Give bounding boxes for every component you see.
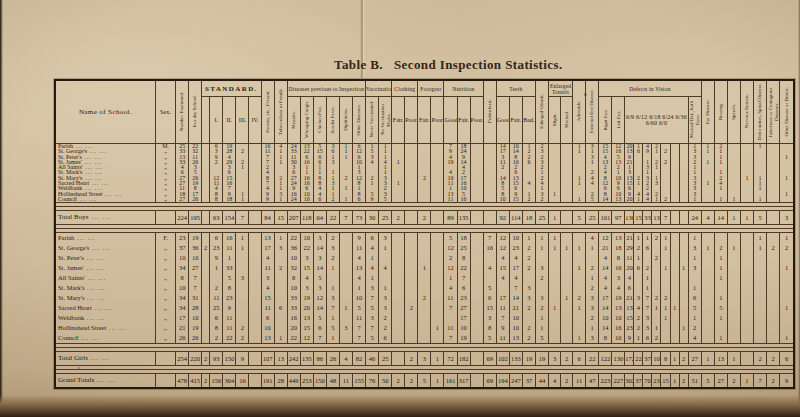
data-cell: [326, 273, 339, 283]
data-cell: 2: [586, 263, 599, 273]
data-cell: 17: [496, 293, 509, 303]
data-cell: 2: [586, 313, 599, 323]
data-cell: [727, 303, 740, 313]
data-cell: 1: [714, 263, 727, 273]
data-cell: 2: [236, 333, 249, 344]
data-cell: 1: [714, 273, 727, 283]
data-cell: 1: [754, 243, 767, 253]
data-cell: [767, 303, 780, 313]
data-cell: 1: [549, 233, 561, 244]
table-row: Hollinshead Street ... ...„2119811210201…: [55, 323, 794, 333]
data-cell: [679, 243, 688, 253]
data-cell: 3: [300, 253, 313, 263]
data-cell: 4: [352, 273, 365, 283]
data-cell: [202, 293, 210, 303]
data-cell: 1: [431, 323, 444, 333]
data-cell: [767, 313, 780, 323]
data-cell: 220: [189, 352, 202, 366]
data-cell: 1: [274, 333, 287, 344]
data-cell: [236, 313, 249, 323]
data-cell: [249, 273, 261, 283]
data-cell: 44: [535, 374, 548, 389]
data-cell: 2: [379, 323, 392, 333]
data-cell: [740, 233, 753, 244]
data-cell: [405, 253, 418, 263]
col-header-nervous-system: Nervous System.: [740, 80, 753, 144]
data-cell: [379, 253, 392, 263]
col-header-enlarged-glands: Enlarged Glands.: [535, 80, 548, 144]
data-cell: [470, 263, 483, 273]
data-cell: 304: [223, 374, 236, 389]
data-cell: 33: [223, 263, 236, 273]
data-cell: [339, 273, 352, 283]
col-header-pediculosis: Pediculosis.: [483, 80, 496, 144]
sex-cell: „: [156, 253, 176, 263]
data-cell: [418, 273, 431, 283]
data-cell: 2: [767, 243, 780, 253]
data-cell: 9: [625, 333, 634, 344]
data-cell: [236, 253, 249, 263]
data-cell: 20: [625, 263, 634, 273]
data-cell: 93: [210, 352, 223, 366]
data-cell: 11: [261, 303, 274, 313]
data-cell: 6: [643, 243, 652, 253]
data-cell: [470, 233, 483, 244]
data-cell: 3: [549, 352, 561, 366]
data-cell: 1: [561, 243, 573, 253]
data-cell: 36: [287, 243, 300, 253]
data-cell: [652, 273, 661, 283]
sub-header: Never Vaccinated.: [366, 97, 379, 144]
data-cell: 89: [444, 211, 457, 225]
data-cell: 2: [522, 333, 535, 344]
data-cell: 1: [535, 313, 548, 323]
sex-cell: F.: [156, 233, 176, 244]
data-cell: 7: [366, 323, 379, 333]
sub-header: II.: [223, 97, 236, 144]
data-cell: 20: [300, 303, 313, 313]
data-cell: [202, 211, 210, 225]
data-cell: 1: [634, 333, 643, 344]
data-cell: 247: [509, 374, 522, 389]
data-cell: 5: [352, 303, 365, 313]
data-cell: 133: [509, 352, 522, 366]
data-cell: 1: [223, 253, 236, 263]
sub-header: No Vaccination Marks.: [379, 97, 392, 144]
data-cell: 27: [714, 374, 727, 389]
data-cell: 7: [189, 283, 202, 293]
group-header-diseases-previous: Diseases previous to Inspection: [287, 80, 365, 97]
sex-cell: „: [156, 333, 176, 344]
data-cell: 9: [210, 253, 223, 263]
data-cell: 5: [688, 303, 701, 313]
data-cell: 1: [573, 263, 586, 273]
data-cell: 20: [287, 323, 300, 333]
data-cell: 2: [634, 313, 643, 323]
data-cell: 10: [176, 253, 189, 263]
data-cell: 5: [483, 283, 496, 293]
data-cell: [714, 323, 727, 333]
data-cell: 15: [261, 293, 274, 303]
data-cell: [767, 233, 780, 244]
data-cell: [740, 323, 753, 333]
data-cell: 1: [643, 233, 652, 244]
data-cell: 1: [661, 313, 670, 323]
data-cell: [483, 211, 496, 225]
data-cell: [549, 283, 561, 293]
data-cell: [339, 293, 352, 303]
data-cell: 2: [780, 243, 794, 253]
table-row: St. Mark's ... ...„107284103311314657324…: [55, 283, 794, 293]
data-cell: 1: [326, 333, 339, 344]
data-cell: 1: [661, 243, 670, 253]
data-cell: [392, 352, 405, 366]
data-cell: 135: [300, 352, 313, 366]
data-cell: 12: [599, 233, 612, 244]
data-cell: 2: [405, 374, 418, 389]
data-cell: 2: [379, 313, 392, 323]
data-cell: 2: [727, 374, 740, 389]
data-cell: 254: [176, 352, 189, 366]
school-name: Sacred Heart ... ...: [55, 303, 156, 313]
data-cell: [573, 313, 586, 323]
data-cell: [236, 263, 249, 273]
data-cell: 5: [223, 273, 236, 283]
data-cell: 1: [670, 374, 679, 389]
data-cell: [701, 333, 714, 344]
data-cell: 3: [313, 283, 326, 293]
data-cell: 415: [189, 374, 202, 389]
data-cell: 13: [300, 313, 313, 323]
data-cell: 7: [352, 333, 365, 344]
data-cell: 3: [300, 283, 313, 293]
data-cell: 26: [189, 333, 202, 344]
data-cell: 8: [287, 273, 300, 283]
data-cell: 34: [176, 293, 189, 303]
data-cell: [249, 211, 261, 225]
data-cell: 22: [300, 243, 313, 253]
data-cell: 6: [366, 233, 379, 244]
table-header: Name of School.Sex.Number Examined.In a …: [55, 80, 794, 144]
data-cell: 13: [261, 333, 274, 344]
data-cell: 2: [405, 352, 418, 366]
data-cell: 14: [599, 303, 612, 313]
data-cell: 1: [634, 253, 643, 263]
data-cell: 12: [496, 243, 509, 253]
data-cell: [652, 243, 661, 253]
data-cell: 25: [457, 243, 470, 253]
data-cell: 3: [366, 283, 379, 293]
col-header-hearing: Hearing.: [714, 80, 727, 144]
group-header-defects-in-vision: Defects in Vision: [599, 80, 702, 97]
data-cell: 1: [740, 374, 753, 389]
data-cell: 13: [352, 263, 365, 273]
data-cell: 1: [535, 323, 548, 333]
data-cell: 1: [643, 273, 652, 283]
data-cell: 1: [670, 303, 679, 313]
data-cell: 3: [313, 233, 326, 244]
data-cell: [470, 323, 483, 333]
data-cell: 114: [509, 211, 522, 225]
data-cell: 3: [366, 313, 379, 323]
data-cell: [767, 333, 780, 344]
sex-cell: „: [156, 283, 176, 293]
total-row: Total Girls ... ...254220293150910713242…: [55, 352, 794, 366]
data-cell: [767, 293, 780, 303]
data-cell: 22: [457, 263, 470, 273]
data-cell: 224: [176, 211, 189, 225]
data-cell: [561, 263, 573, 273]
data-cell: 2: [643, 263, 652, 273]
data-cell: [740, 313, 753, 323]
data-cell: 102: [496, 352, 509, 366]
data-cell: [549, 263, 561, 273]
data-cell: 1: [326, 313, 339, 323]
school-name: St. Mark's ... ...: [55, 283, 156, 293]
data-cell: 5: [366, 303, 379, 313]
data-cell: 4: [586, 233, 599, 244]
data-cell: [780, 273, 794, 283]
data-cell: 10: [509, 313, 522, 323]
data-cell: 155: [352, 374, 365, 389]
data-cell: 22: [586, 352, 599, 366]
data-cell: 11: [223, 243, 236, 253]
data-cell: 1: [688, 253, 701, 263]
data-cell: 1: [366, 253, 379, 263]
data-cell: 13: [274, 352, 287, 366]
data-cell: 82: [352, 352, 365, 366]
data-cell: 1: [652, 303, 661, 313]
data-cell: 5: [418, 374, 431, 389]
col-header-speech: Speech.: [727, 80, 740, 144]
data-cell: 1: [670, 352, 679, 366]
col-header-sex: Sex.: [156, 80, 176, 144]
group-header-footgear: Footgear: [418, 80, 444, 97]
data-cell: 10: [599, 313, 612, 323]
data-cell: 16: [236, 374, 249, 389]
data-cell: [767, 253, 780, 263]
data-cell: 21: [625, 293, 634, 303]
data-cell: [470, 293, 483, 303]
data-cell: [418, 313, 431, 323]
data-cell: [405, 243, 418, 253]
data-cell: [740, 273, 753, 283]
school-name: St. James' ... ...: [55, 263, 156, 273]
data-cell: 70: [643, 374, 652, 389]
data-cell: [431, 283, 444, 293]
data-cell: 13: [261, 233, 274, 244]
data-cell: [392, 283, 405, 293]
data-cell: [431, 313, 444, 323]
photo-edge-shadow-left: [0, 0, 3, 417]
data-cell: 6: [274, 303, 287, 313]
data-cell: 9: [352, 233, 365, 244]
data-cell: 1: [740, 211, 753, 225]
data-cell: 3: [274, 243, 287, 253]
data-cell: 1: [727, 352, 740, 366]
data-cell: 130: [625, 211, 634, 225]
col-header-deformities: Deformities, Spinal Disease.: [754, 80, 767, 144]
data-cell: [727, 253, 740, 263]
data-cell: [202, 253, 210, 263]
sub-header: Right Eye.: [599, 97, 612, 144]
data-cell: 7: [236, 211, 249, 225]
data-cell: [701, 323, 714, 333]
data-cell: 10: [509, 233, 522, 244]
data-cell: [339, 253, 352, 263]
data-cell: 2: [418, 293, 431, 303]
data-cell: 3: [379, 233, 392, 244]
data-cell: [431, 263, 444, 273]
data-cell: 4: [300, 273, 313, 283]
data-cell: [274, 283, 287, 293]
data-cell: 29: [625, 243, 634, 253]
data-cell: 13: [714, 352, 727, 366]
data-cell: 2: [652, 293, 661, 303]
data-cell: 2: [661, 293, 670, 303]
data-cell: [249, 303, 261, 313]
data-cell: 7: [444, 333, 457, 344]
data-cell: [431, 333, 444, 344]
data-cell: 10: [287, 253, 300, 263]
data-cell: 63: [210, 211, 223, 225]
data-cell: 3: [535, 293, 548, 303]
sub-header: Fair.: [457, 97, 470, 144]
data-cell: 33: [643, 211, 652, 225]
data-cell: 6: [643, 333, 652, 344]
data-cell: 1: [688, 233, 701, 244]
data-cell: 3: [586, 303, 599, 313]
sub-header: 6/9 6/12 6/18 6/24 6/36 6/60 6/0: [625, 97, 688, 144]
data-cell: [561, 233, 573, 244]
data-cell: 1: [535, 243, 548, 253]
data-cell: 2: [522, 243, 535, 253]
data-cell: 1: [727, 243, 740, 253]
data-cell: [444, 313, 457, 323]
data-cell: 10: [287, 283, 300, 293]
data-cell: 18: [457, 233, 470, 244]
data-cell: [274, 253, 287, 263]
data-cell: 6: [313, 323, 326, 333]
data-cell: 14: [599, 323, 612, 333]
data-cell: 3: [643, 323, 652, 333]
data-cell: 47: [586, 374, 599, 389]
data-cell: 3: [236, 273, 249, 283]
data-cell: [405, 333, 418, 344]
data-cell: 2: [535, 303, 548, 313]
data-cell: [573, 233, 586, 244]
col-header-ear-disease: Ear Disease.: [701, 80, 714, 144]
data-cell: 1: [714, 333, 727, 344]
data-cell: 12: [313, 293, 326, 303]
data-cell: 22: [287, 233, 300, 244]
data-cell: [727, 273, 740, 283]
data-cell: 17: [599, 293, 612, 303]
data-cell: 6: [379, 333, 392, 344]
data-cell: 1: [573, 243, 586, 253]
sub-header: Fair.: [418, 97, 431, 144]
data-cell: 25: [379, 211, 392, 225]
data-cell: 6: [573, 352, 586, 366]
data-cell: 1: [379, 283, 392, 293]
data-cell: 1: [652, 323, 661, 333]
data-cell: 5: [535, 333, 548, 344]
data-cell: 122: [599, 352, 612, 366]
data-cell: 1: [634, 233, 643, 244]
data-cell: 4: [509, 253, 522, 263]
data-cell: 6: [210, 313, 223, 323]
data-cell: 37: [176, 243, 189, 253]
sex-cell: [156, 352, 176, 366]
data-cell: [405, 293, 418, 303]
data-cell: [740, 352, 753, 366]
data-cell: 10: [189, 253, 202, 263]
data-cell: 11: [223, 313, 236, 323]
data-cell: [549, 293, 561, 303]
data-cell: [522, 273, 535, 283]
data-cell: 14: [599, 263, 612, 273]
data-cell: [780, 323, 794, 333]
data-cell: 23: [223, 293, 236, 303]
data-cell: [561, 313, 573, 323]
data-cell: [249, 352, 261, 366]
data-cell: [670, 243, 679, 253]
data-cell: [249, 283, 261, 293]
data-cell: 30: [366, 211, 379, 225]
data-cell: 118: [300, 211, 313, 225]
sex-cell: „: [156, 263, 176, 273]
school-name: Hollinshead Street ... ...: [55, 323, 156, 333]
data-cell: 2: [767, 352, 780, 366]
data-cell: 31: [189, 293, 202, 303]
data-cell: 1: [573, 333, 586, 344]
data-cell: [549, 273, 561, 283]
data-cell: 3: [586, 333, 599, 344]
data-cell: [652, 263, 661, 273]
data-cell: [754, 333, 767, 344]
data-cell: 11: [261, 263, 274, 273]
sub-header: Measles.: [287, 97, 300, 144]
data-cell: 2: [418, 211, 431, 225]
data-cell: [754, 283, 767, 293]
data-cell: 19: [300, 293, 313, 303]
data-cell: 2: [522, 323, 535, 333]
data-cell: [202, 313, 210, 323]
data-cell: [431, 211, 444, 225]
data-cell: [661, 253, 670, 263]
data-cell: [670, 233, 679, 244]
data-cell: 23: [509, 243, 522, 253]
data-cell: 4: [339, 352, 352, 366]
data-cell: 22: [223, 333, 236, 344]
data-cell: [249, 243, 261, 253]
data-cell: 3: [379, 303, 392, 313]
data-cell: 10: [176, 283, 189, 293]
data-cell: 3: [634, 293, 643, 303]
data-cell: 4: [599, 253, 612, 263]
data-cell: 1: [701, 352, 714, 366]
data-cell: 7: [366, 293, 379, 303]
table-row: St. James' ... ...„342713311232151411344…: [55, 263, 794, 273]
data-cell: [431, 243, 444, 253]
data-cell: 72: [444, 352, 457, 366]
data-cell: 4: [612, 283, 625, 293]
data-cell: [701, 233, 714, 244]
data-cell: 1: [661, 233, 670, 244]
data-cell: [535, 253, 548, 263]
data-cell: 107: [261, 352, 274, 366]
data-cell: 3: [339, 323, 352, 333]
